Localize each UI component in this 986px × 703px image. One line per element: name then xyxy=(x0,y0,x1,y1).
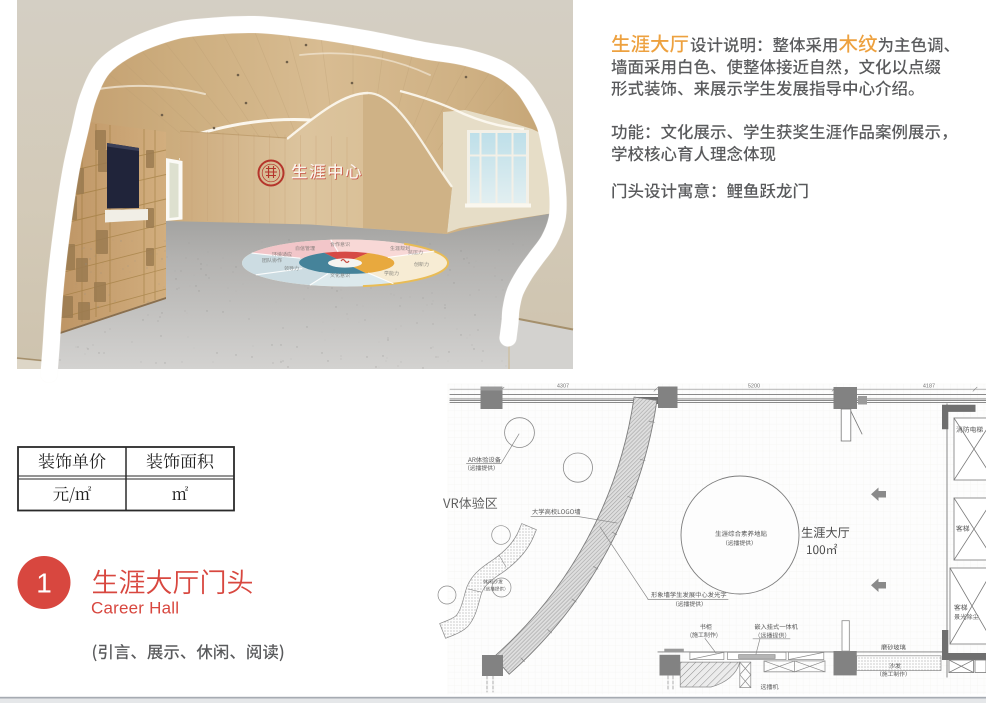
svg-text:Career Hall: Career Hall xyxy=(91,599,179,618)
svg-text:4187: 4187 xyxy=(923,384,935,390)
svg-text:5200: 5200 xyxy=(748,384,760,390)
svg-text:1: 1 xyxy=(36,568,52,599)
svg-text:4307: 4307 xyxy=(557,384,569,390)
